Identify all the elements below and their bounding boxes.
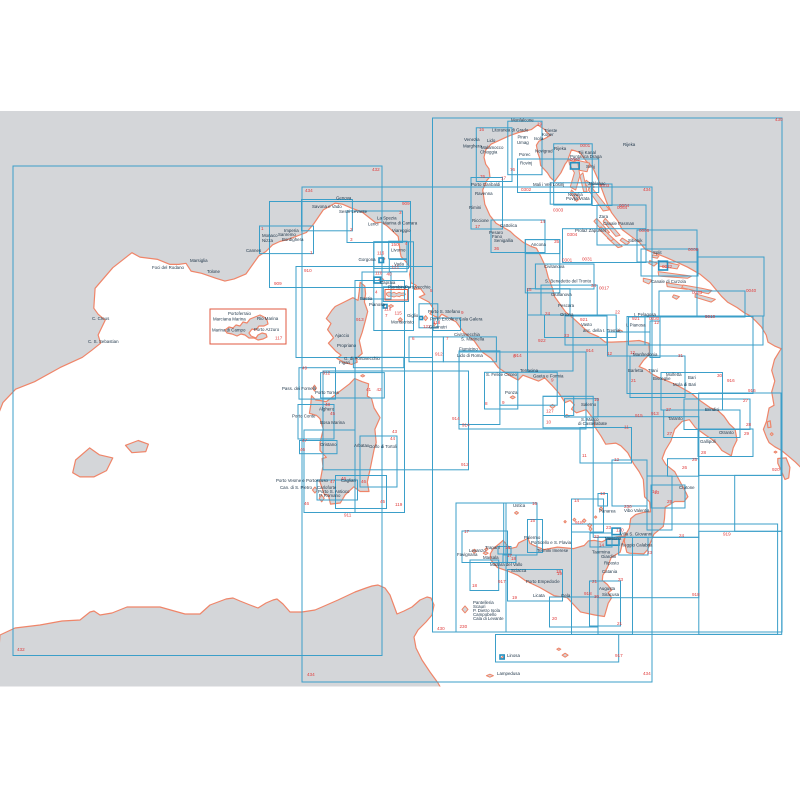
svg-text:Marina di Campo: Marina di Campo: [212, 327, 246, 332]
svg-text:24: 24: [545, 311, 551, 316]
svg-text:36: 36: [494, 246, 500, 251]
svg-text:Termini Imerese: Termini Imerese: [537, 548, 569, 553]
svg-text:6: 6: [412, 336, 415, 341]
svg-text:14: 14: [599, 543, 605, 548]
svg-text:Ortona: Ortona: [560, 312, 574, 317]
svg-text:28: 28: [746, 422, 752, 427]
svg-text:Can. di S. Pietro: Can. di S. Pietro: [280, 485, 313, 490]
svg-text:5010: 5010: [705, 314, 716, 319]
svg-text:Bari: Bari: [688, 375, 696, 380]
svg-text:44: 44: [390, 436, 396, 441]
svg-text:Rijeka: Rijeka: [554, 146, 567, 151]
svg-text:11: 11: [624, 425, 629, 430]
svg-text:15: 15: [530, 518, 536, 523]
svg-text:Cannes: Cannes: [246, 248, 262, 253]
svg-text:Gela: Gela: [561, 593, 571, 598]
svg-text:46: 46: [300, 447, 306, 452]
svg-text:16: 16: [479, 127, 485, 132]
svg-text:0022: 0022: [662, 264, 673, 269]
svg-text:Ajaccio: Ajaccio: [335, 333, 350, 338]
svg-text:Licata: Licata: [533, 593, 545, 598]
svg-text:Rijeka: Rijeka: [623, 142, 636, 147]
svg-text:Porec: Porec: [519, 152, 531, 157]
svg-text:33: 33: [618, 577, 624, 582]
svg-text:17: 17: [475, 224, 481, 229]
svg-text:S. Marinella: S. Marinella: [461, 337, 485, 342]
svg-text:19: 19: [512, 595, 518, 600]
svg-text:Chioggia: Chioggia: [480, 150, 498, 155]
svg-text:Porto Conte: Porto Conte: [292, 414, 316, 419]
svg-text:30: 30: [594, 594, 600, 599]
svg-text:Augusta: Augusta: [599, 586, 616, 591]
svg-text:918: 918: [692, 592, 700, 597]
svg-text:25: 25: [692, 457, 698, 462]
svg-text:913: 913: [651, 411, 659, 416]
svg-text:23: 23: [564, 333, 570, 338]
svg-text:C. S. Sebastian: C. S. Sebastian: [88, 339, 119, 344]
svg-text:Reggio Calabria: Reggio Calabria: [621, 543, 653, 548]
svg-text:Senj: Senj: [586, 164, 595, 169]
svg-text:230: 230: [460, 624, 468, 629]
svg-text:I. Pelagosa: I. Pelagosa: [634, 312, 657, 317]
svg-text:0004: 0004: [619, 203, 630, 208]
svg-text:Cagliari: Cagliari: [341, 478, 356, 483]
svg-text:Canale Pasman: Canale Pasman: [603, 221, 635, 226]
svg-text:Ancona: Ancona: [531, 242, 546, 247]
svg-text:Giulianova: Giulianova: [551, 292, 572, 297]
svg-text:49: 49: [302, 365, 308, 370]
svg-text:922: 922: [538, 338, 546, 343]
svg-text:Bordighera: Bordighera: [282, 237, 304, 242]
svg-text:913: 913: [356, 317, 364, 322]
svg-text:0301: 0301: [562, 258, 573, 263]
svg-text:150: 150: [391, 242, 399, 247]
svg-text:Favignana: Favignana: [457, 552, 478, 557]
svg-text:Marghera: Marghera: [463, 143, 482, 148]
svg-text:Pescara: Pescara: [558, 303, 575, 308]
svg-text:19: 19: [556, 569, 562, 574]
svg-text:9: 9: [461, 310, 464, 315]
svg-text:20: 20: [552, 616, 558, 621]
svg-text:Salerno: Salerno: [581, 402, 597, 407]
svg-text:910: 910: [304, 268, 312, 273]
svg-text:14: 14: [540, 219, 546, 224]
svg-text:Giardini: Giardini: [601, 554, 616, 559]
svg-text:Marsiglia: Marsiglia: [190, 258, 208, 263]
svg-text:di Castellabate: di Castellabate: [578, 421, 608, 426]
svg-text:Gaeta e Formia: Gaeta e Formia: [533, 374, 564, 379]
svg-text:16: 16: [532, 501, 538, 506]
svg-text:S. Benedetto del Tronto: S. Benedetto del Tronto: [545, 279, 592, 284]
svg-text:Ravenna: Ravenna: [475, 191, 493, 196]
svg-text:Terracina: Terracina: [520, 368, 539, 373]
svg-text:Panarea: Panarea: [599, 509, 616, 514]
svg-text:917: 917: [498, 579, 506, 584]
svg-text:45: 45: [330, 411, 336, 416]
svg-text:Portovecchio: Portovecchio: [405, 285, 431, 290]
svg-text:43: 43: [392, 429, 398, 434]
svg-text:Riposto: Riposto: [604, 561, 619, 566]
svg-text:Jablanac: Jablanac: [588, 181, 606, 186]
svg-text:34: 34: [591, 283, 597, 288]
svg-text:28: 28: [701, 450, 707, 455]
svg-text:916: 916: [748, 388, 756, 393]
svg-text:1: 1: [310, 250, 313, 255]
svg-text:Litoranea di Grado: Litoranea di Grado: [492, 128, 529, 133]
svg-text:Civitanova: Civitanova: [544, 264, 565, 269]
svg-text:Messina: Messina: [605, 536, 622, 541]
svg-text:Trapani: Trapani: [485, 545, 500, 550]
svg-text:911: 911: [344, 513, 352, 518]
svg-text:0040: 0040: [746, 288, 757, 293]
svg-text:0008: 0008: [688, 247, 699, 252]
svg-text:Linosa: Linosa: [507, 653, 520, 658]
svg-text:Nizza: Nizza: [262, 238, 274, 243]
svg-text:920: 920: [772, 467, 780, 472]
svg-text:Pass. dei Fornelli: Pass. dei Fornelli: [282, 386, 316, 391]
svg-text:432: 432: [372, 167, 380, 172]
svg-text:Siracusa: Siracusa: [602, 592, 620, 597]
svg-text:0303: 0303: [553, 208, 564, 213]
svg-text:Villa S. Giovanni: Villa S. Giovanni: [620, 532, 652, 537]
svg-text:0006: 0006: [639, 228, 650, 233]
svg-text:C. Creus: C. Creus: [92, 316, 110, 321]
svg-text:30: 30: [717, 373, 723, 378]
svg-text:76: 76: [480, 174, 486, 179]
svg-text:Figari: Figari: [339, 360, 350, 365]
svg-text:127: 127: [546, 409, 554, 414]
svg-text:23: 23: [606, 525, 612, 530]
svg-text:Livorno: Livorno: [391, 248, 406, 253]
svg-text:430: 430: [775, 117, 783, 122]
svg-text:41: 41: [366, 387, 372, 392]
svg-text:0001: 0001: [580, 143, 591, 148]
svg-text:115: 115: [395, 311, 403, 316]
svg-text:Porto Torres: Porto Torres: [315, 390, 340, 395]
svg-text:Viareggio: Viareggio: [392, 228, 411, 233]
svg-text:118: 118: [384, 307, 392, 312]
svg-text:29: 29: [744, 431, 750, 436]
svg-text:26: 26: [682, 465, 688, 470]
svg-text:Marina di Carrara: Marina di Carrara: [383, 221, 418, 226]
svg-text:Pesaro: Pesaro: [489, 230, 503, 235]
svg-text:Sibenik: Sibenik: [628, 238, 643, 243]
svg-text:Brindisi: Brindisi: [705, 407, 719, 412]
svg-text:909: 909: [402, 201, 410, 206]
svg-text:Marsala: Marsala: [483, 555, 499, 560]
svg-text:I. Pianosa: I. Pianosa: [626, 323, 646, 328]
svg-text:Ustica: Ustica: [513, 503, 526, 508]
svg-text:18: 18: [511, 556, 517, 561]
svg-text:119: 119: [395, 502, 403, 507]
svg-text:Koper: Koper: [542, 132, 554, 137]
svg-text:Isola: Isola: [534, 136, 544, 141]
svg-text:5: 5: [430, 288, 433, 293]
svg-text:Golfo di Tortoli: Golfo di Tortoli: [369, 444, 397, 449]
svg-text:17: 17: [501, 176, 507, 181]
svg-text:Canale di Curzola: Canale di Curzola: [651, 279, 686, 284]
svg-text:430: 430: [437, 626, 445, 631]
svg-text:Bosa Marina: Bosa Marina: [320, 420, 345, 425]
svg-text:23: 23: [647, 550, 653, 555]
svg-text:16: 16: [505, 545, 511, 550]
svg-text:Split: Split: [653, 250, 662, 255]
svg-text:Lerici: Lerici: [368, 221, 379, 226]
svg-text:116: 116: [377, 251, 385, 256]
svg-text:Propriano: Propriano: [337, 343, 357, 348]
svg-text:11: 11: [582, 453, 587, 458]
svg-text:Cala di Levante: Cala di Levante: [473, 616, 504, 621]
svg-text:Montecristo: Montecristo: [391, 319, 414, 324]
svg-text:Sestri Levante: Sestri Levante: [339, 209, 368, 214]
svg-text:110: 110: [375, 271, 383, 276]
svg-text:915: 915: [635, 413, 643, 418]
svg-text:Trani: Trani: [648, 368, 658, 373]
svg-text:917: 917: [615, 653, 623, 658]
svg-text:Vada: Vada: [394, 262, 404, 267]
svg-text:Porto Empedocle: Porto Empedocle: [526, 579, 560, 584]
svg-text:27: 27: [667, 431, 673, 436]
svg-text:Venezia: Venezia: [464, 137, 480, 142]
svg-text:40: 40: [387, 272, 393, 277]
svg-text:P. Romano: P. Romano: [319, 493, 341, 498]
svg-text:42: 42: [377, 387, 383, 392]
svg-text:432: 432: [17, 647, 25, 652]
svg-text:Marciana Marina: Marciana Marina: [213, 317, 246, 322]
svg-text:918: 918: [575, 520, 583, 525]
svg-text:Prolaz Zapuntel: Prolaz Zapuntel: [575, 228, 606, 233]
svg-text:27: 27: [743, 398, 749, 403]
svg-text:7: 7: [446, 336, 449, 341]
svg-text:0017: 0017: [599, 286, 610, 291]
svg-text:45: 45: [380, 499, 386, 504]
svg-text:14: 14: [574, 498, 580, 503]
svg-text:912: 912: [435, 352, 443, 357]
svg-text:Rimini: Rimini: [469, 205, 481, 210]
svg-text:434: 434: [305, 188, 313, 193]
svg-text:434: 434: [643, 187, 651, 192]
svg-text:Taranto: Taranto: [668, 416, 683, 421]
svg-text:Portoferraio: Portoferraio: [228, 311, 251, 316]
svg-text:Povlja Vrata: Povlja Vrata: [566, 196, 590, 201]
svg-text:14: 14: [652, 489, 658, 494]
svg-text:Ponza: Ponza: [505, 390, 518, 395]
svg-text:0031: 0031: [582, 257, 593, 262]
svg-text:434: 434: [643, 671, 651, 676]
svg-text:Puntarica Draga: Puntarica Draga: [570, 154, 602, 159]
svg-text:Bisceglie: Bisceglie: [653, 376, 671, 381]
svg-text:Piran: Piran: [518, 135, 529, 140]
svg-text:13: 13: [600, 491, 606, 496]
svg-text:Lido: Lido: [487, 138, 496, 143]
svg-text:47: 47: [302, 438, 308, 443]
svg-text:918: 918: [584, 591, 592, 596]
svg-text:10: 10: [546, 420, 552, 425]
svg-text:Porto Garibaldi: Porto Garibaldi: [471, 182, 500, 187]
svg-text:434: 434: [307, 672, 315, 677]
svg-text:914: 914: [462, 423, 470, 428]
svg-text:Sciacca: Sciacca: [511, 568, 527, 573]
svg-text:Arbatax: Arbatax: [354, 443, 370, 448]
svg-text:Barletta: Barletta: [628, 368, 644, 373]
svg-text:Rio Marina: Rio Marina: [257, 316, 279, 321]
svg-text:1: 1: [261, 226, 264, 231]
svg-text:Vibo Valentia: Vibo Valentia: [624, 508, 650, 513]
svg-text:12: 12: [614, 457, 620, 462]
svg-text:Tolone: Tolone: [207, 269, 220, 274]
svg-text:909: 909: [274, 281, 282, 286]
svg-text:21: 21: [617, 621, 623, 626]
svg-text:anc. della I. Tremiti: anc. della I. Tremiti: [583, 328, 620, 333]
svg-text:Mazara del Vallo: Mazara del Vallo: [490, 562, 523, 567]
svg-text:8: 8: [485, 401, 488, 406]
svg-text:Manfredonia: Manfredonia: [633, 352, 658, 357]
svg-text:9: 9: [502, 400, 505, 405]
svg-text:19: 19: [537, 122, 543, 127]
svg-text:Genova: Genova: [336, 196, 352, 201]
svg-text:Riccione: Riccione: [472, 218, 489, 223]
svg-text:Zara: Zara: [599, 214, 609, 219]
svg-text:0302: 0302: [521, 187, 532, 192]
svg-text:3: 3: [399, 210, 402, 215]
svg-text:Cattolica: Cattolica: [500, 223, 518, 228]
svg-text:Porto Ercole e Cala Galera: Porto Ercole e Cala Galera: [430, 317, 483, 322]
svg-text:12: 12: [654, 320, 660, 325]
svg-text:Giannutri: Giannutri: [429, 325, 447, 330]
svg-text:914: 914: [452, 416, 460, 421]
svg-text:Savona e Vado: Savona e Vado: [312, 204, 342, 209]
svg-text:29: 29: [667, 499, 673, 504]
svg-text:Pianosa: Pianosa: [369, 302, 385, 307]
svg-text:Vasto: Vasto: [581, 322, 592, 327]
svg-text:919: 919: [723, 532, 731, 537]
svg-text:Mali i Veli Losinj: Mali i Veli Losinj: [533, 182, 564, 187]
svg-text:4: 4: [405, 241, 408, 246]
svg-text:912: 912: [461, 462, 469, 467]
svg-text:Porto S. Stefano: Porto S. Stefano: [428, 309, 461, 314]
svg-text:Mola di Bari: Mola di Bari: [673, 382, 696, 387]
svg-text:Lido di Roma: Lido di Roma: [457, 353, 483, 358]
svg-text:Oristano: Oristano: [320, 442, 337, 447]
svg-text:8: 8: [513, 354, 516, 359]
svg-text:Umag: Umag: [517, 140, 529, 145]
svg-text:22: 22: [615, 310, 621, 315]
svg-text:47: 47: [330, 479, 336, 484]
svg-text:21: 21: [631, 378, 637, 383]
svg-text:Monfalcone: Monfalcone: [511, 117, 534, 122]
svg-text:3: 3: [350, 237, 353, 242]
svg-text:914: 914: [586, 348, 594, 353]
svg-text:46: 46: [304, 501, 310, 506]
svg-text:Foci del Rodano: Foci del Rodano: [152, 265, 185, 270]
svg-text:27: 27: [666, 407, 672, 412]
svg-text:24: 24: [679, 533, 685, 538]
svg-text:Bastia: Bastia: [360, 296, 373, 301]
svg-text:12: 12: [607, 351, 613, 356]
svg-text:15: 15: [527, 287, 533, 292]
svg-text:916: 916: [727, 378, 735, 383]
svg-text:S. Felice Circeo: S. Felice Circeo: [486, 372, 518, 377]
svg-text:7: 7: [385, 313, 388, 318]
svg-text:46: 46: [361, 479, 367, 484]
svg-text:Giglio: Giglio: [407, 313, 419, 318]
svg-text:2: 2: [350, 227, 353, 232]
svg-text:0033: 0033: [692, 290, 703, 295]
svg-text:Fiumicino: Fiumicino: [459, 347, 478, 352]
svg-text:Crotone: Crotone: [679, 485, 695, 490]
svg-text:Porto Vesme e Portoscuso: Porto Vesme e Portoscuso: [276, 478, 329, 483]
svg-text:35: 35: [554, 239, 560, 244]
svg-text:21: 21: [592, 579, 598, 584]
svg-text:Gorgona: Gorgona: [359, 257, 377, 262]
svg-text:Porticello e S. Flavia: Porticello e S. Flavia: [531, 540, 572, 545]
svg-text:Novigrad: Novigrad: [535, 149, 553, 154]
svg-text:17: 17: [464, 529, 470, 534]
svg-text:Otranto: Otranto: [719, 430, 734, 435]
svg-text:22: 22: [594, 534, 600, 539]
svg-text:18: 18: [472, 583, 478, 588]
svg-text:31: 31: [678, 353, 684, 358]
svg-text:117: 117: [275, 336, 283, 341]
svg-text:Alghero: Alghero: [319, 407, 335, 412]
svg-text:Taormina: Taormina: [592, 550, 611, 555]
svg-text:Gallipoli: Gallipoli: [700, 439, 716, 444]
svg-text:Porto Azzuro: Porto Azzuro: [254, 327, 280, 332]
svg-text:912: 912: [323, 371, 331, 376]
svg-text:Lampedusa: Lampedusa: [497, 671, 521, 676]
svg-text:4: 4: [375, 290, 378, 295]
svg-text:76: 76: [510, 167, 516, 172]
svg-text:Catania: Catania: [602, 569, 618, 574]
svg-text:Rovinj: Rovinj: [520, 161, 532, 166]
